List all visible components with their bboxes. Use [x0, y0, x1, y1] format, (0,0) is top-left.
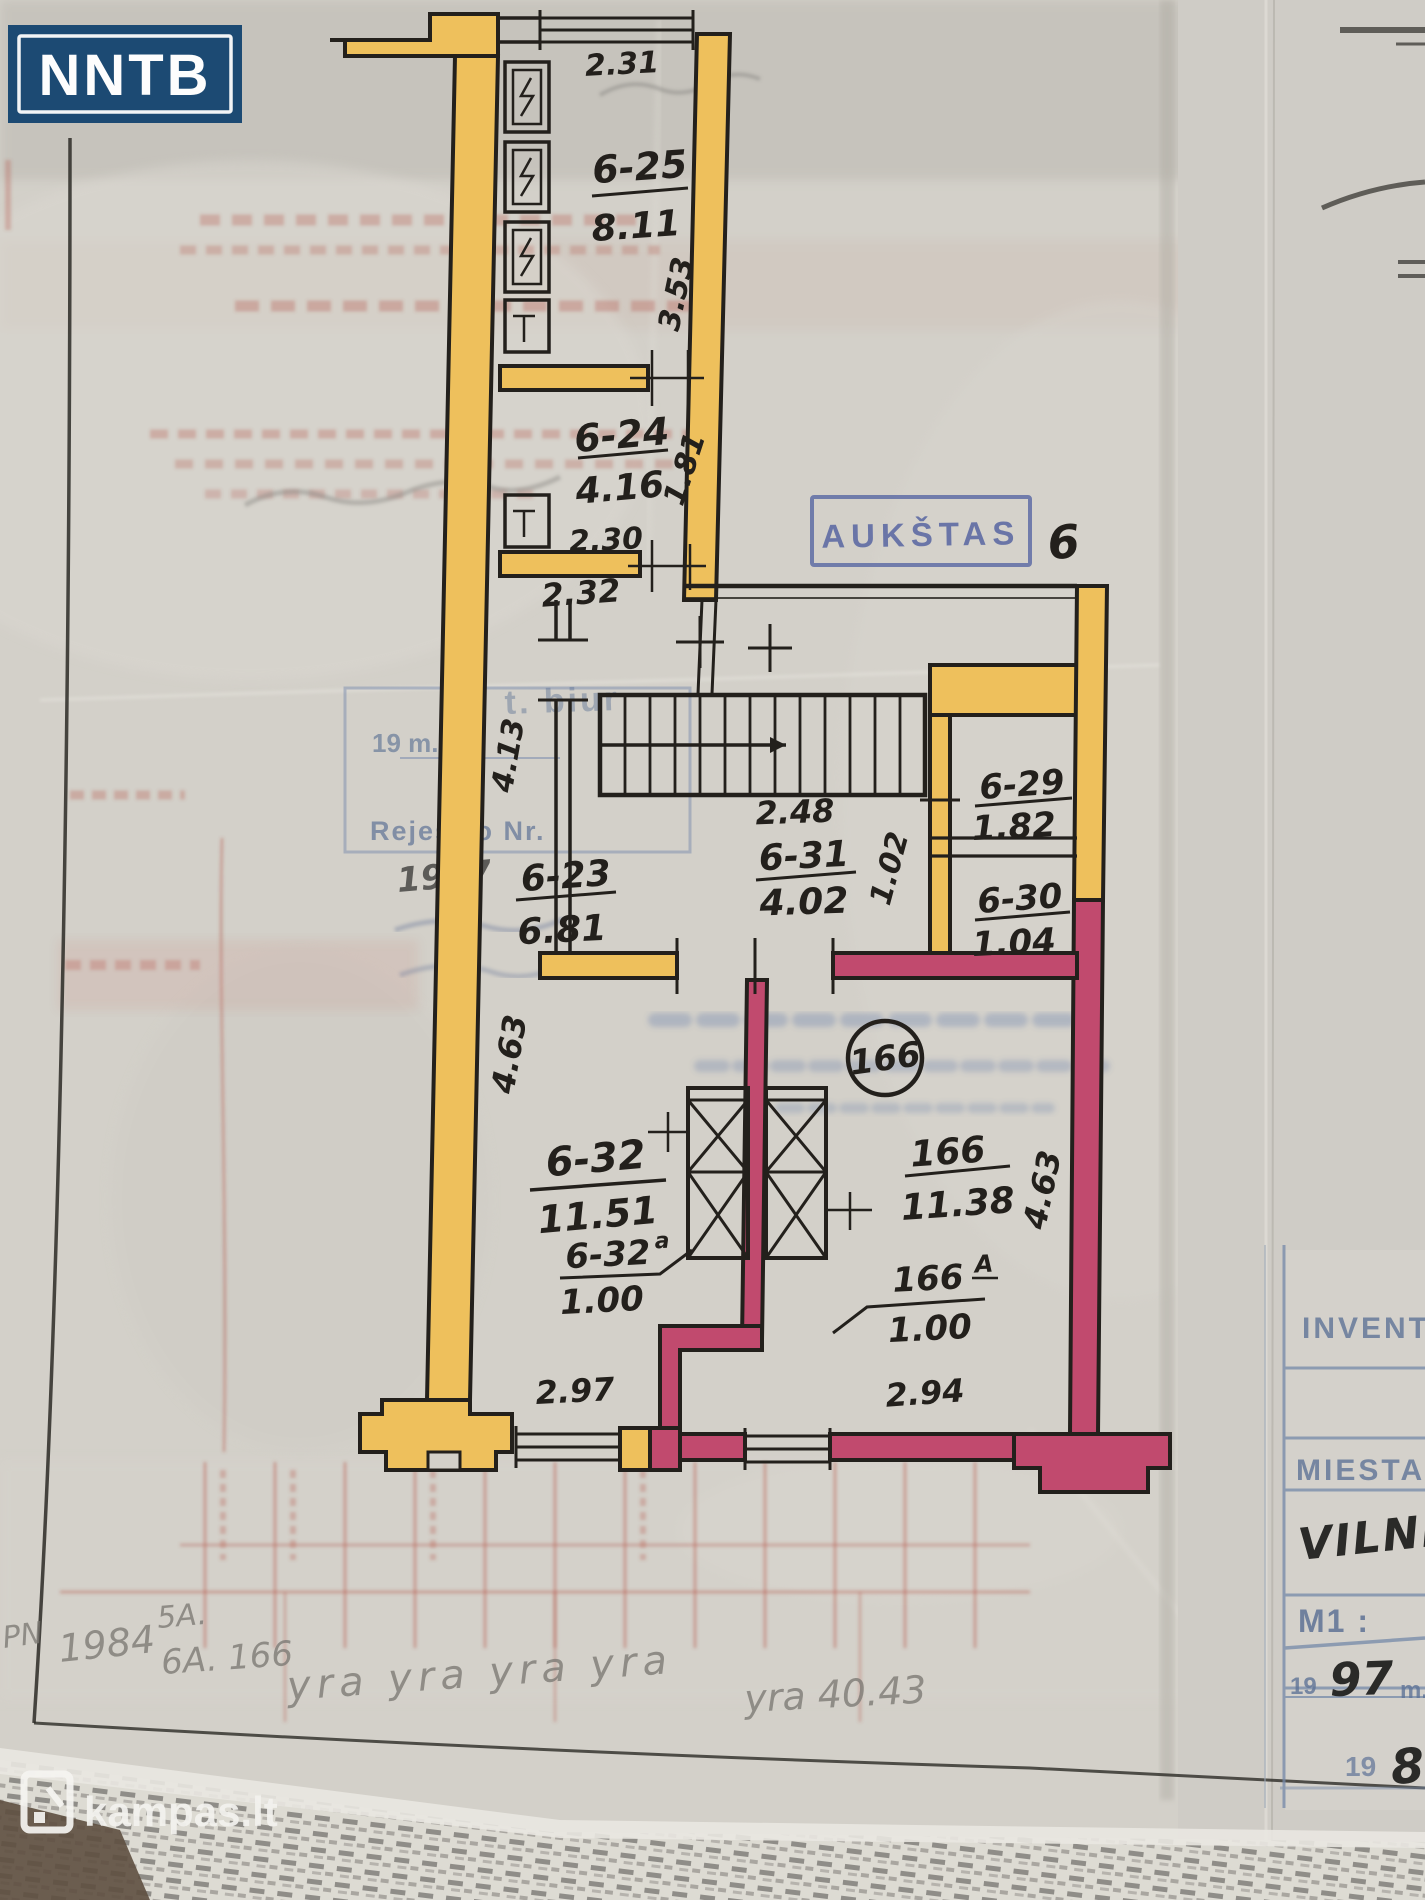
room-code: 166: [891, 1257, 964, 1301]
wall-hall-right: [930, 715, 950, 953]
card-scale-label: M1 :: [1298, 1603, 1370, 1639]
dim-632-width: 2.97: [535, 1370, 617, 1412]
room-code-sup: a: [654, 1229, 670, 1255]
room-area: 1.00: [887, 1307, 973, 1351]
room-code: 6-25: [591, 142, 689, 193]
card-year-hand: 97: [1328, 1651, 1394, 1707]
wall-bottom-pink-2: [830, 1434, 1030, 1460]
room-area: 1.04: [971, 921, 1057, 965]
pillar-yellow-half: [620, 1428, 650, 1470]
room-code-sup: A: [972, 1250, 994, 1279]
wall-right-outer-yellow: [1074, 586, 1107, 900]
card-year2-prefix: 19: [1345, 1751, 1376, 1782]
wall-central-pink: [742, 980, 767, 1340]
stamp-year-line: 19 m.: [372, 728, 439, 758]
pencil-flat-a: 5A.: [156, 1597, 209, 1636]
wall-top-629: [930, 665, 1077, 715]
room-area: 4.02: [758, 880, 849, 924]
nntb-logo-text: NNTB: [38, 43, 211, 108]
wall-section-yellow: [540, 953, 677, 978]
card-city-label: MIESTAS: [1296, 1454, 1425, 1487]
room-code: 6-32: [544, 1132, 648, 1187]
room-area: 4.16: [573, 464, 666, 513]
card-meters: m.: [1400, 1677, 1425, 1704]
scanned-floorplan-photo: 19 m. Rejestro Nr. t. biur 1947: [0, 0, 1425, 1900]
kampas-watermark-text: kampas.lt: [84, 1788, 278, 1835]
room-area: 1.82: [971, 805, 1057, 849]
room-area: 1.00: [559, 1279, 645, 1323]
dim-corridor-width: 2.32: [540, 571, 621, 614]
wall-partition-625-624: [500, 366, 648, 390]
room-code: 6-32: [564, 1233, 651, 1277]
card-header: INVENT: [1302, 1312, 1425, 1345]
pencil-left-margin: PN: [0, 1616, 45, 1656]
footing-notch: [428, 1452, 460, 1470]
nntb-logo: NNTB: [8, 25, 242, 123]
card-year2-hand: 8: [1389, 1738, 1425, 1796]
room-area: 11.38: [900, 1180, 1016, 1229]
room-area: 6.81: [516, 908, 607, 954]
room-area: 8.11: [590, 203, 681, 250]
dim-166-width: 2.94: [884, 1371, 965, 1414]
kampas-icon-dot: [34, 1812, 45, 1823]
dim-624-width: 2.30: [568, 521, 644, 560]
wall-right-outer-pink: [1070, 900, 1103, 1434]
pillar-pink-half: [650, 1428, 680, 1470]
faded-red-band: [58, 940, 418, 1010]
wall-bottom-pink-1: [680, 1434, 745, 1460]
dim-stair-width: 2.48: [755, 792, 835, 833]
floorplan-canvas: 19 m. Rejestro Nr. t. biur 1947: [0, 0, 1425, 1900]
dim-top-window: 2.31: [584, 45, 660, 84]
card-year-prefix: 19: [1290, 1673, 1317, 1700]
floor-stamp-label: AUKŠTAS: [821, 513, 1021, 554]
floor-number: 6: [1046, 514, 1082, 570]
